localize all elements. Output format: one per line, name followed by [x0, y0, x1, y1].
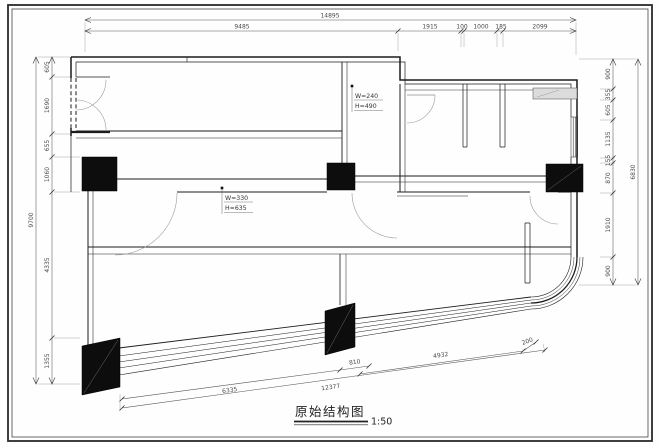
- dim-label: 1355: [44, 353, 51, 368]
- drawing-sheet: 14895 9485 1915 100 1000 185 2099 605 16…: [0, 0, 660, 446]
- dim-label-right-overall: 6830: [630, 164, 637, 179]
- dim-label: 1135: [605, 131, 612, 146]
- scale-label: 1:50: [371, 417, 392, 428]
- dim-label: 810: [349, 358, 361, 367]
- dim-label: 900: [605, 265, 612, 277]
- beam-annotation-height: H=490: [355, 103, 377, 110]
- dim-label-top-overall: 14895: [320, 12, 339, 19]
- dim-label: 12377: [321, 383, 341, 393]
- door-arcs: [76, 80, 558, 255]
- dim-label: 100: [456, 24, 468, 31]
- dim-label: 4932: [433, 351, 449, 360]
- window-sill: [533, 88, 577, 99]
- beam-annotation-mid: W=330 H=635: [221, 187, 253, 214]
- right-dimension-column: 900 355 605 1135 155 870 1910 900 6830: [579, 59, 641, 285]
- dim-label: 355: [605, 89, 612, 101]
- column: [327, 163, 355, 190]
- columns: [82, 157, 583, 395]
- dim-label: 4335: [44, 257, 51, 272]
- beam-annotation-width: W=240: [355, 93, 378, 100]
- dim-label-left-overall: 9700: [28, 212, 35, 227]
- dim-label: 200: [521, 336, 534, 347]
- drawing-title: 原始结构图: [295, 404, 365, 419]
- dim-label: 1060: [44, 167, 51, 182]
- dim-label: 1910: [605, 217, 612, 232]
- dim-label: 6335: [222, 386, 238, 395]
- column: [82, 157, 117, 191]
- dim-label: 900: [605, 68, 612, 80]
- dim-label: 1000: [473, 24, 488, 31]
- left-dimension-column: 605 1690 655 1060 4335 1355 9700: [28, 57, 80, 384]
- title-block: 原始结构图 1:50: [294, 404, 392, 428]
- beam-annotation-height: H=635: [225, 205, 247, 212]
- walls: [71, 57, 577, 346]
- beam-annotation-top: W=240 H=490: [351, 85, 383, 112]
- floor-plan-canvas: 14895 9485 1915 100 1000 185 2099 605 16…: [0, 0, 660, 446]
- dim-label: 605: [605, 104, 612, 116]
- dim-label: 655: [44, 140, 51, 152]
- dim-label: 1690: [44, 98, 51, 113]
- dim-label: 2099: [532, 24, 547, 31]
- dim-label: 185: [495, 24, 507, 31]
- dim-label: 605: [44, 61, 51, 73]
- dim-label: 9485: [234, 24, 249, 31]
- beam-annotation-width: W=330: [225, 195, 248, 202]
- dim-label: 1915: [422, 24, 437, 31]
- dim-label: 870: [605, 172, 612, 184]
- dim-label: 155: [605, 155, 612, 167]
- top-dimension-rows: 14895 9485 1915 100 1000 185 2099: [85, 12, 576, 55]
